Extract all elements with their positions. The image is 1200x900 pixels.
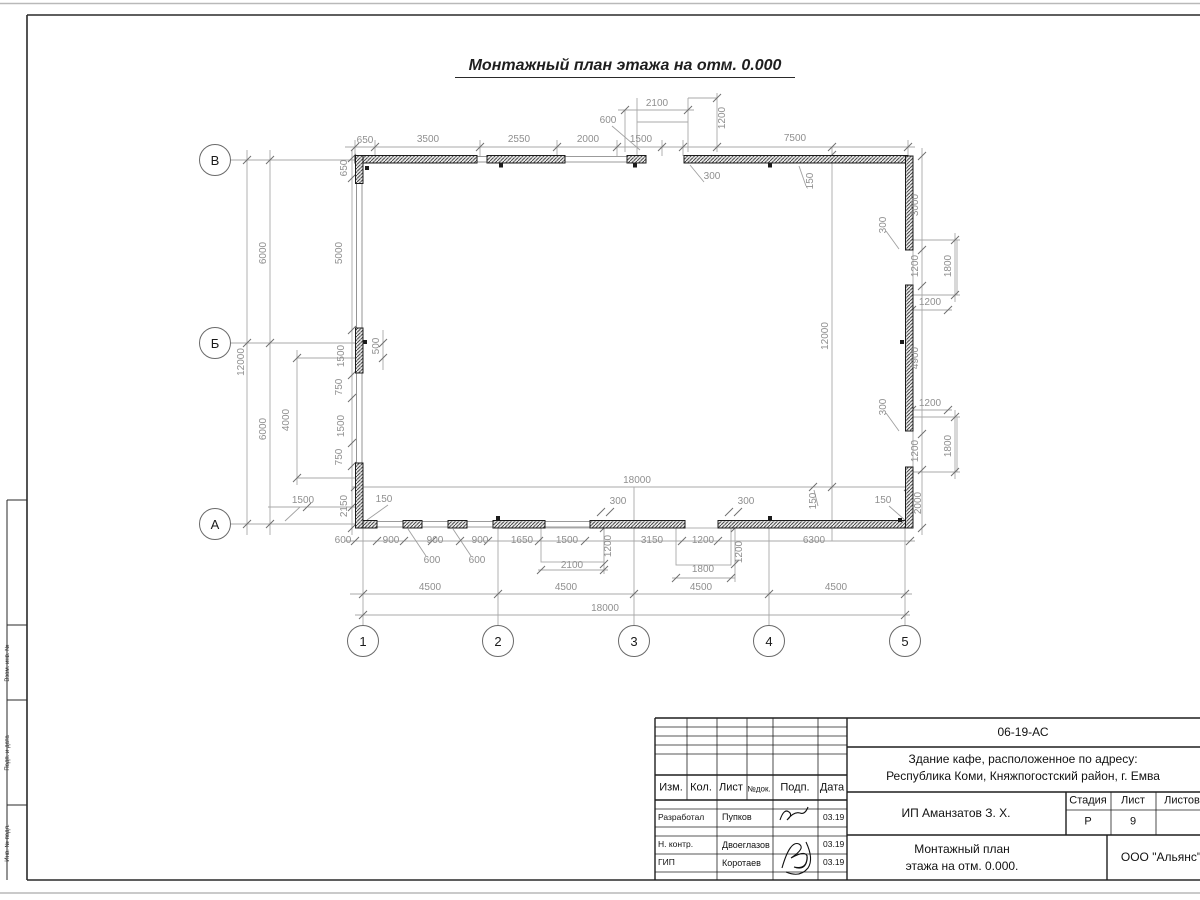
stamp-col-podp: Подп. [780,782,809,795]
signatures [780,807,811,874]
stamp-stadia-value: Р [1084,816,1091,829]
stamp-sheet-title-line1: Монтажный план [914,843,1010,857]
dimension-label: 1200 [604,535,614,557]
dimension-label: 1500 [337,415,347,437]
dimension-label: 4500 [419,583,441,593]
dimension-label: 2000 [577,135,599,145]
axis-bubble-2: 2 [482,625,514,657]
margin-stamp-label: Инв. № подл. [5,824,11,861]
dimension-label: 18000 [623,476,651,486]
dimension-label: 600 [335,536,352,546]
dimension-label: 150 [875,496,892,506]
stamp-col-data: Дата [820,782,844,795]
dimension-label: 1500 [337,345,347,367]
dimension-label: 18000 [591,604,619,614]
drawing-sheet: Монтажный план этажа на отм. 0.000 65035… [0,0,1200,900]
margin-stamp-label: Взам. инв. № [5,644,11,681]
axis-bubble-3: 3 [618,625,650,657]
stamp-row-name-0: Пупков [722,812,752,822]
axis-bubble-1: 1 [347,625,379,657]
dimension-label: 750 [335,379,345,396]
dimension-label: 300 [738,497,755,507]
dimension-label: 600 [424,556,441,566]
page-title: Монтажный план этажа на отм. 0.000 [455,57,795,78]
dimension-label: 900 [472,536,489,546]
axis-bubble-4: 4 [753,625,785,657]
margin-stamp-cells [7,500,27,880]
dimension-label: 1200 [911,255,921,277]
dimension-label: 150 [376,495,393,505]
dimension-label: 3000 [911,194,921,216]
margin-stamp-label: Подп. и дата [5,735,11,770]
dimension-label: 1200 [919,399,941,409]
dimension-label: 1200 [718,107,728,129]
dimension-label: 4500 [690,583,712,593]
stamp-row-date-0: 03.19 [823,813,844,823]
dimension-label: 150 [806,173,816,190]
stamp-doc-code: 06-19-АС [997,726,1048,740]
dimension-label: 1200 [919,298,941,308]
dimension-label: 750 [335,449,345,466]
stamp-organization: ООО "Альянс" [1121,851,1200,865]
stamp-row-date-1: 03.19 [823,840,844,850]
dimension-label: 1800 [944,435,954,457]
dimension-label: 600 [469,556,486,566]
dimension-label: 1200 [735,541,745,563]
dimension-label: 2000 [914,492,924,514]
dimension-label: 3150 [641,536,663,546]
dimension-label: 2100 [561,561,583,571]
dimension-label: 150 [809,493,819,510]
stamp-col-list: Лист [719,782,743,795]
dimension-label: 300 [879,399,889,416]
stamp-col-ndok: №док. [747,784,770,793]
stamp-col-kol: Кол. [690,782,712,795]
stamp-stadia-label: Стадия [1069,795,1107,808]
stamp-col-izm: Изм. [659,782,683,795]
dimension-label: 5000 [335,242,345,264]
dimension-label: 1500 [630,135,652,145]
dimension-label: 1200 [692,536,714,546]
stamp-object-line1: Здание кафе, расположенное по адресу: [908,753,1137,767]
dimension-label: 4900 [911,347,921,369]
dimension-label: 2150 [340,495,350,517]
dimension-label: 600 [600,116,617,126]
stamp-sheet-title-line2: этажа на отм. 0.000. [906,860,1019,874]
stamp-row-name-2: Коротаев [722,858,761,868]
drawing-frame [27,15,1200,880]
dimension-label: 6000 [259,418,269,440]
axis-bubble-Б: Б [199,327,231,359]
dimension-label: 500 [372,338,382,355]
dimension-label: 1200 [911,440,921,462]
stamp-client: ИП Аманзатов З. Х. [901,807,1010,821]
stamp-row-role-0: Разработал [658,813,704,823]
dimension-label: 3500 [417,135,439,145]
dimension-label: 1800 [692,565,714,575]
stamp-list-label: Лист [1121,795,1145,808]
dimension-label: 7500 [784,134,806,144]
axis-bubble-5: 5 [889,625,921,657]
stamp-listov-label: Листов [1164,795,1200,808]
dimension-label: 4500 [555,583,577,593]
dimension-label: 12000 [821,322,831,350]
stamp-row-role-1: Н. контр. [658,840,693,850]
axis-bubble-В: В [199,144,231,176]
dimension-label: 2100 [646,99,668,109]
dimension-label: 300 [610,497,627,507]
dimension-label: 650 [340,160,350,177]
dimension-label: 1650 [511,536,533,546]
dimension-label: 300 [879,217,889,234]
stamp-row-date-2: 03.19 [823,858,844,868]
dimension-label: 300 [704,172,721,182]
axis-bubble-А: А [199,508,231,540]
dimension-label: 1800 [944,255,954,277]
dimension-label: 1500 [292,496,314,506]
dimension-label: 12000 [237,348,247,376]
dimension-label: 6300 [803,536,825,546]
dimension-label: 900 [383,536,400,546]
stamp-row-role-2: ГИП [658,858,675,868]
dimension-label: 650 [357,136,374,146]
dimension-label: 1500 [556,536,578,546]
stamp-object-line2: Республика Коми, Княжпогостский район, г… [886,770,1160,784]
dimension-label: 6000 [259,242,269,264]
signature-gip [782,842,811,874]
dimension-label: 2550 [508,135,530,145]
dimension-label: 4000 [282,409,292,431]
stamp-list-value: 9 [1130,816,1136,829]
dimension-label: 900 [427,536,444,546]
dimension-label: 4500 [825,583,847,593]
stamp-row-name-1: Двоеглазов [722,840,770,850]
